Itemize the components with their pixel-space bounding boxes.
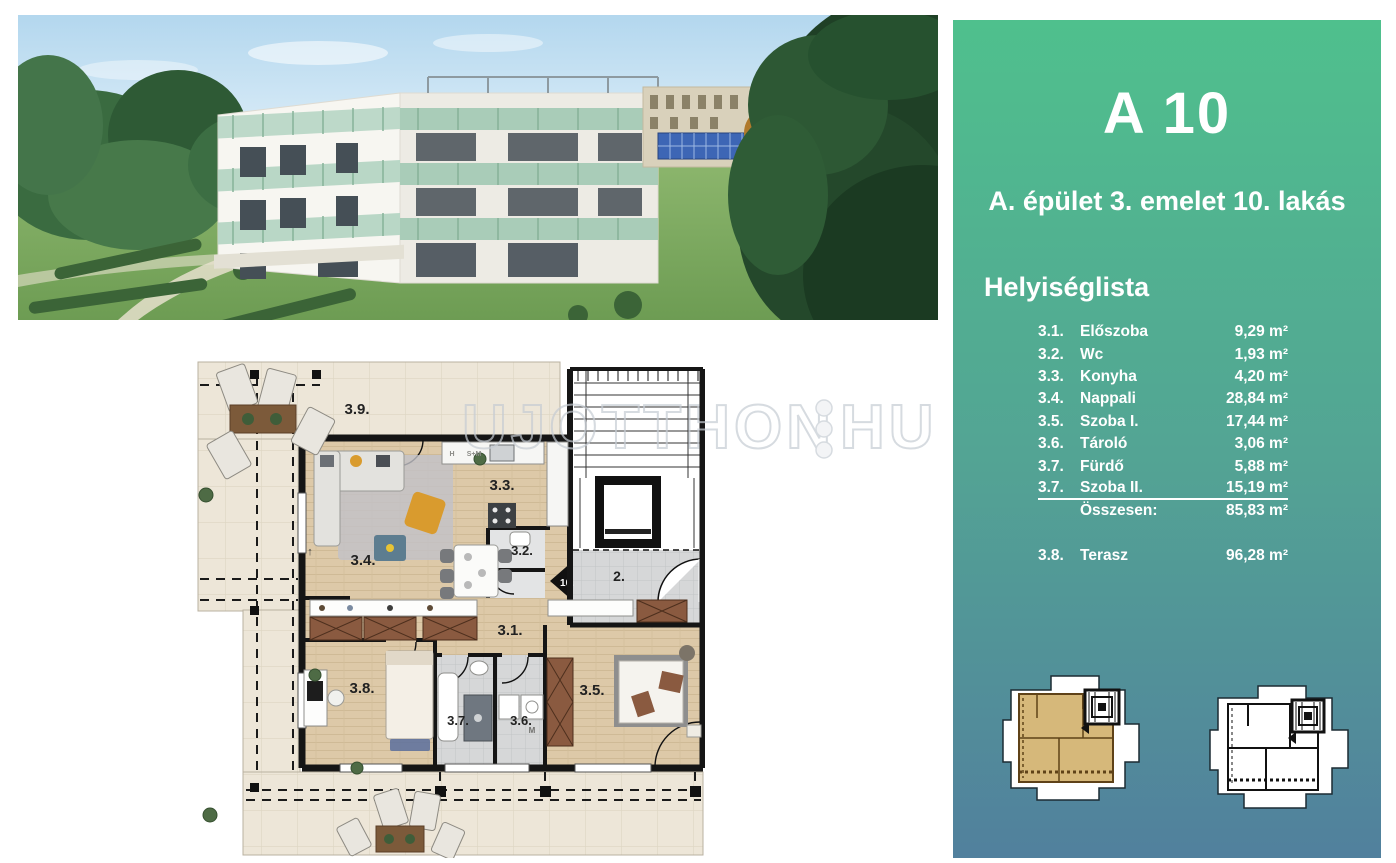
room-no: 3.4. <box>1038 390 1080 408</box>
room-name: Tároló <box>1080 435 1235 453</box>
room-area: 17,44 m² <box>1226 413 1288 431</box>
room-name: Előszoba <box>1080 323 1235 341</box>
room-area: 9,29 m² <box>1235 323 1288 341</box>
room-no: 3.1. <box>1038 323 1080 341</box>
room-list-table: 3.1.Előszoba9,29 m² 3.2.Wc1,93 m² 3.3.Ko… <box>1038 321 1288 567</box>
floorplan-thumbnail-plain <box>1204 678 1356 826</box>
room-no: 3.5. <box>1038 413 1080 431</box>
north-arrow: ↑ <box>307 546 313 558</box>
building-rendering-photo <box>18 15 938 320</box>
room-area: 96,28 m² <box>1226 547 1288 565</box>
spacer-row <box>1038 523 1288 545</box>
room-name: Szoba II. <box>1080 479 1226 497</box>
total-area: 85,83 m² <box>1226 502 1288 520</box>
room-area: 4,20 m² <box>1235 368 1288 386</box>
apartment-code-title: A 10 <box>953 80 1381 147</box>
floorplan-thumbnail-highlighted <box>997 662 1149 824</box>
room-no: 3.7. <box>1038 458 1080 476</box>
room-area: 5,88 m² <box>1235 458 1288 476</box>
terrace-row: 3.8.Terasz96,28 m² <box>1038 545 1288 567</box>
total-row: Összesen:85,83 m² <box>1038 500 1288 522</box>
room-row: 3.7.Fürdő5,88 m² <box>1038 455 1288 477</box>
room-row: 3.2.Wc1,93 m² <box>1038 343 1288 365</box>
room-name: Fürdő <box>1080 458 1235 476</box>
room-list-heading: Helyiséglista <box>984 272 1149 303</box>
room-no: 3.7. <box>1038 479 1080 497</box>
room-row: 3.5.Szoba I.17,44 m² <box>1038 411 1288 433</box>
room-row: 3.6.Tároló3,06 m² <box>1038 433 1288 455</box>
room-area: 28,84 m² <box>1226 390 1288 408</box>
room-name: Szoba I. <box>1080 413 1226 431</box>
label-kitchen-h: H <box>449 451 454 458</box>
room-row: 3.1.Előszoba9,29 m² <box>1038 321 1288 343</box>
watermark-right: HU <box>840 393 937 462</box>
label-bath: 3.7. <box>447 713 469 728</box>
building-rendering-illustration <box>18 15 938 320</box>
room-area: 1,93 m² <box>1235 346 1288 364</box>
label-kitchen: 3.3. <box>489 477 514 494</box>
room-row: 3.4.Nappali28,84 m² <box>1038 388 1288 410</box>
room-row-underlined: 3.7.Szoba II.15,19 m² <box>1038 478 1288 500</box>
label-stairs: 2. <box>613 568 625 584</box>
label-kitchen-sm: S+M <box>467 451 482 458</box>
main-building <box>214 77 658 283</box>
room-no: 3.2. <box>1038 346 1080 364</box>
room-area: 3,06 m² <box>1235 435 1288 453</box>
staircase-core <box>571 369 702 624</box>
floor-plan-drawing: 10. <box>190 343 705 858</box>
thumb-stair-block <box>1085 690 1119 724</box>
room-no: 3.3. <box>1038 368 1080 386</box>
apartment-location-subtitle: A. épület 3. emelet 10. lakás <box>953 186 1381 217</box>
total-label: Összesen: <box>1080 502 1226 520</box>
floor-plan: 10. <box>190 343 705 858</box>
room-no: 3.8. <box>1038 547 1080 565</box>
label-living: 3.4. <box>350 552 375 569</box>
label-bedroom: 3.5. <box>579 682 604 699</box>
thumb-stair-block <box>1292 700 1324 732</box>
apartment-info-panel: A 10 A. épület 3. emelet 10. lakás Helyi… <box>953 20 1381 858</box>
room-name: Nappali <box>1080 390 1226 408</box>
room-row: 3.3.Konyha4,20 m² <box>1038 366 1288 388</box>
label-terrace: 3.9. <box>344 401 369 418</box>
label-hall: 3.1. <box>497 622 522 639</box>
label-wc: 3.2. <box>511 543 533 558</box>
label-room38: 3.8. <box>349 680 374 697</box>
room-area: 15,19 m² <box>1226 479 1288 497</box>
room-name: Wc <box>1080 346 1235 364</box>
label-washer-m: M <box>529 726 536 735</box>
room-no: 3.6. <box>1038 435 1080 453</box>
room-name: Konyha <box>1080 368 1235 386</box>
room-name: Terasz <box>1080 547 1226 565</box>
